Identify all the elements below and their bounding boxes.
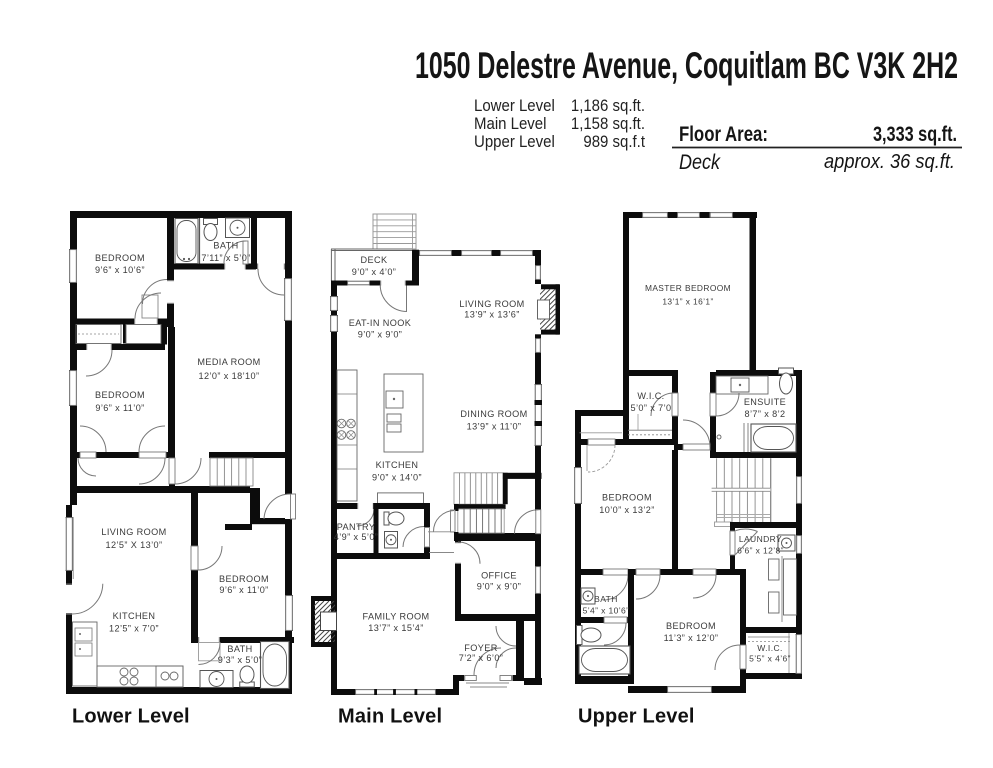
svg-text:5’0” x 7’0: 5’0” x 7’0 [630,403,671,413]
svg-text:LAUNDRY: LAUNDRY [739,534,782,544]
svg-text:9’0” x 9’0”: 9’0” x 9’0” [358,330,402,340]
svg-text:12’5” x 7’0”: 12’5” x 7’0” [109,624,159,634]
svg-text:W.I.C.: W.I.C. [637,391,664,401]
svg-text:BEDROOM: BEDROOM [95,253,145,263]
svg-text:Main Level: Main Level [474,115,546,133]
svg-text:approx. 36 sq.ft.: approx. 36 sq.ft. [824,150,955,173]
svg-text:MEDIA ROOM: MEDIA ROOM [197,357,260,367]
svg-text:7’11” x 5’0”: 7’11” x 5’0” [201,253,250,263]
svg-text:LIVING ROOM: LIVING ROOM [101,527,166,537]
svg-text:BEDROOM: BEDROOM [219,574,269,584]
svg-text:Main Level: Main Level [338,706,442,728]
svg-text:9’6” x 10’6”: 9’6” x 10’6” [95,265,145,275]
svg-text:LIVING ROOM: LIVING ROOM [459,299,524,309]
svg-text:Lower Level: Lower Level [474,97,555,115]
svg-text:1,158 sq.ft.: 1,158 sq.ft. [571,115,645,133]
svg-text:9’0” x 9’0”: 9’0” x 9’0” [477,582,521,592]
svg-text:FOYER: FOYER [464,643,497,653]
svg-text:3,333 sq.ft.: 3,333 sq.ft. [873,124,957,147]
svg-text:Upper Level: Upper Level [578,706,695,728]
svg-text:OFFICE: OFFICE [481,571,517,581]
svg-text:4’9” x 5’0”: 4’9” x 5’0” [334,532,378,542]
svg-text:W.I.C.: W.I.C. [757,643,783,653]
svg-text:BEDROOM: BEDROOM [602,493,652,503]
svg-text:KITCHEN: KITCHEN [376,460,419,470]
svg-text:DECK: DECK [361,255,388,265]
svg-text:BATH: BATH [594,594,618,604]
svg-text:5’5” x 4’6”: 5’5” x 4’6” [749,654,791,664]
svg-text:6’6” x 12’8”: 6’6” x 12’8” [737,546,784,556]
svg-text:1050 Delestre Avenue, Coquitla: 1050 Delestre Avenue, Coquitlam BC V3K 2… [415,45,958,87]
svg-text:10’0” x 13’2”: 10’0” x 13’2” [599,505,654,515]
svg-text:EAT-IN NOOK: EAT-IN NOOK [349,318,412,328]
svg-text:BATH: BATH [227,644,252,654]
svg-text:12’5” X 13’0”: 12’5” X 13’0” [106,540,163,550]
svg-text:BEDROOM: BEDROOM [666,621,716,631]
svg-text:FAMILY ROOM: FAMILY ROOM [363,612,430,622]
svg-text:13’1” x 16’1”: 13’1” x 16’1” [662,297,713,307]
svg-text:MASTER BEDROOM: MASTER BEDROOM [645,283,731,293]
svg-text:9’0” x 14’0”: 9’0” x 14’0” [372,473,422,483]
svg-text:13’9” x 11’0”: 13’9” x 11’0” [467,422,522,432]
svg-text:DINING ROOM: DINING ROOM [460,409,527,419]
svg-text:KITCHEN: KITCHEN [113,611,156,621]
svg-text:7’2” x 6’0”: 7’2” x 6’0” [459,653,503,663]
svg-text:ENSUITE: ENSUITE [744,397,786,407]
svg-text:1,186 sq.ft.: 1,186 sq.ft. [571,97,645,115]
svg-text:12’0” x 18’10”: 12’0” x 18’10” [199,371,260,381]
svg-text:Floor Area:: Floor Area: [679,124,768,147]
svg-text:BATH: BATH [213,241,238,251]
svg-text:5’4” x 10’6”: 5’4” x 10’6” [583,606,630,616]
svg-text:9’0” x 4’0”: 9’0” x 4’0” [352,267,396,277]
svg-text:Upper Level: Upper Level [474,133,555,151]
svg-text:989 sq.f.t: 989 sq.f.t [583,133,645,151]
svg-text:11’3” x 12’0”: 11’3” x 12’0” [664,633,719,643]
svg-text:PANTRY: PANTRY [337,522,376,532]
svg-text:BEDROOM: BEDROOM [95,390,145,400]
svg-text:13’7” x 15’4”: 13’7” x 15’4” [368,623,423,633]
svg-text:8’7” x 8’2: 8’7” x 8’2 [744,409,785,419]
svg-text:Lower Level: Lower Level [72,706,190,728]
svg-text:13’9” x 13’6”: 13’9” x 13’6” [464,310,519,320]
svg-text:9’3” x 5’0”: 9’3” x 5’0” [218,655,262,665]
svg-text:Deck: Deck [679,151,721,175]
svg-text:9’6” x 11’0”: 9’6” x 11’0” [219,585,268,595]
svg-text:9’6” x 11’0”: 9’6” x 11’0” [95,403,144,413]
